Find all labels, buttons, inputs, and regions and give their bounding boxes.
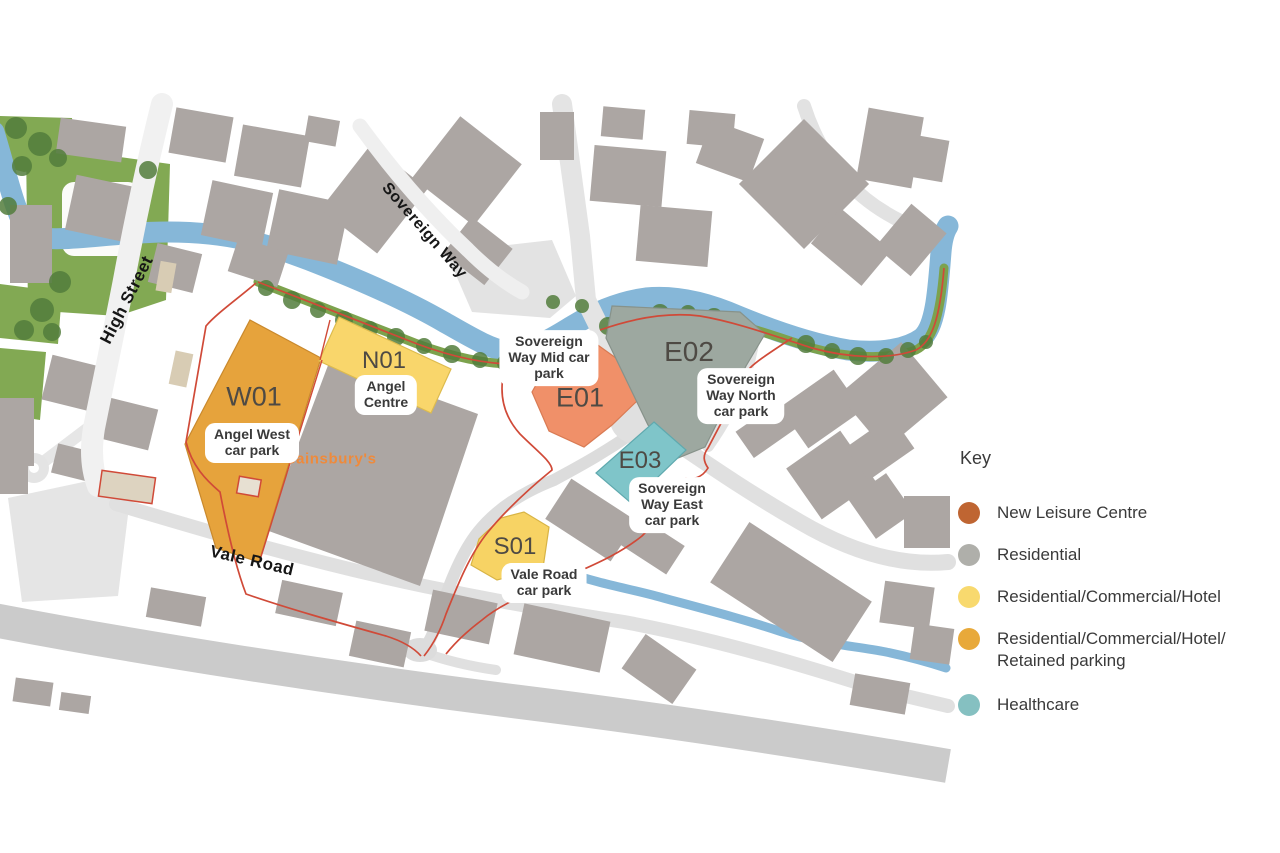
key-swatch-residential-commercial-hotel	[958, 586, 980, 608]
swatch-circle	[958, 586, 980, 608]
key-swatch-healthcare	[958, 694, 980, 716]
key-label: Residential/Commercial/Hotel/ Retained p…	[997, 628, 1226, 672]
key-title: Key	[960, 448, 1273, 469]
key-label: Healthcare	[997, 694, 1079, 716]
swatch-circle	[958, 628, 980, 650]
key-item-healthcare: Healthcare	[958, 694, 1273, 716]
key-label: Residential/Commercial/Hotel	[997, 586, 1221, 608]
swatch-circle	[958, 544, 980, 566]
key-item-retained-parking: Residential/Commercial/Hotel/ Retained p…	[958, 628, 1273, 672]
key-label: New Leisure Centre	[997, 502, 1147, 524]
key-swatch-retained-parking	[958, 628, 980, 650]
key-item-new-leisure-centre: New Leisure Centre	[958, 502, 1273, 524]
masterplan-map: High Street Sovereign Way Vale Road Sain…	[0, 0, 1280, 853]
swatch-circle	[958, 694, 980, 716]
key-label-line: Retained parking	[997, 650, 1226, 672]
swatch-circle	[958, 502, 980, 524]
map-key: Key New Leisure Centre Residential Resid…	[958, 448, 1273, 736]
key-label: Residential	[997, 544, 1081, 566]
key-item-residential: Residential	[958, 544, 1273, 566]
key-swatch-residential	[958, 544, 980, 566]
key-label-line: Residential/Commercial/Hotel/	[997, 628, 1226, 650]
key-item-residential-commercial-hotel: Residential/Commercial/Hotel	[958, 586, 1273, 608]
key-swatch-new-leisure-centre	[958, 502, 980, 524]
